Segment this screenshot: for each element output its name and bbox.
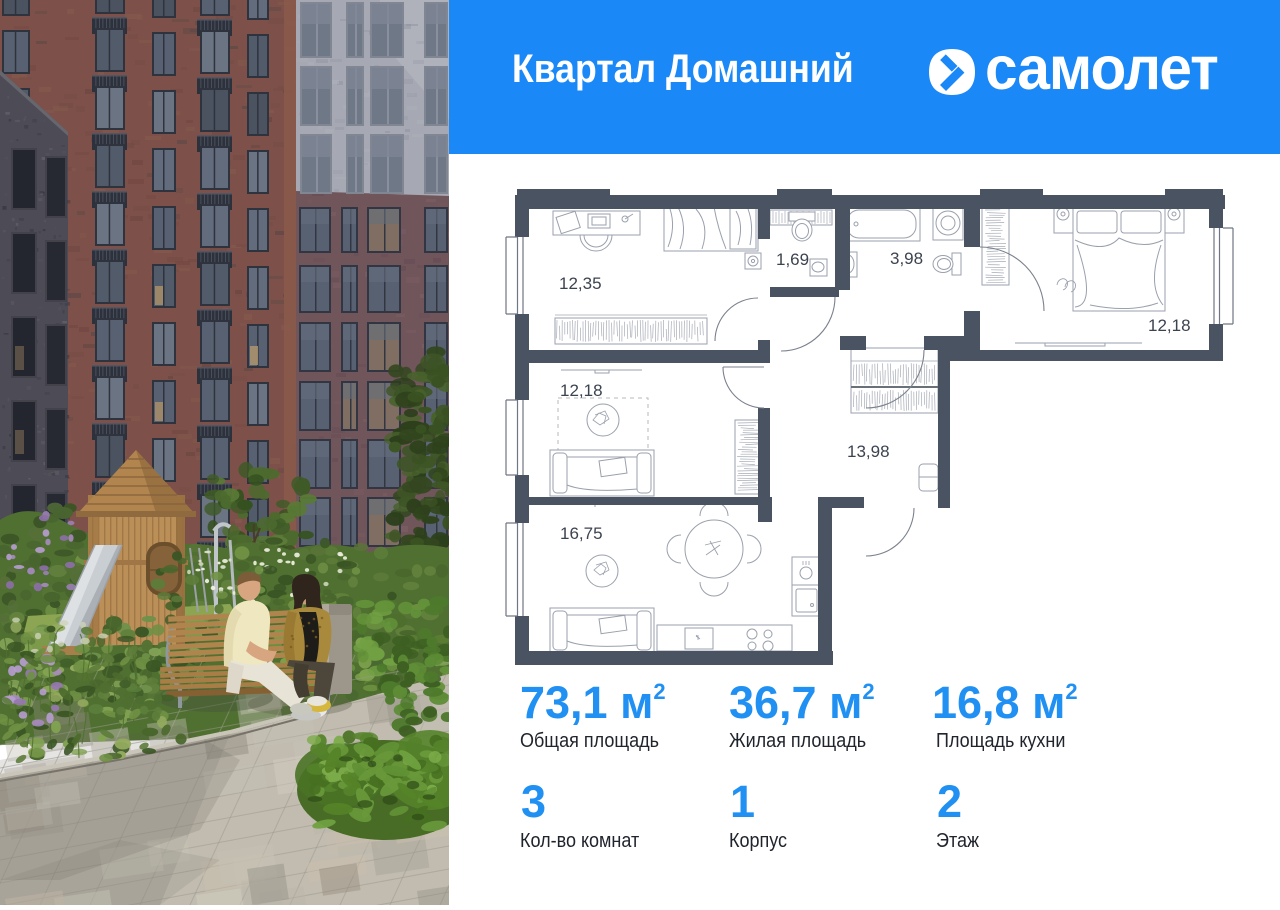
svg-text:3,98: 3,98	[890, 249, 923, 268]
svg-text:13,98: 13,98	[847, 442, 890, 461]
svg-text:16,75: 16,75	[560, 524, 603, 543]
svg-text:12,18: 12,18	[560, 381, 603, 400]
svg-text:12,35: 12,35	[559, 274, 602, 293]
svg-text:1,69: 1,69	[776, 250, 809, 269]
svg-text:12,18: 12,18	[1148, 316, 1191, 335]
